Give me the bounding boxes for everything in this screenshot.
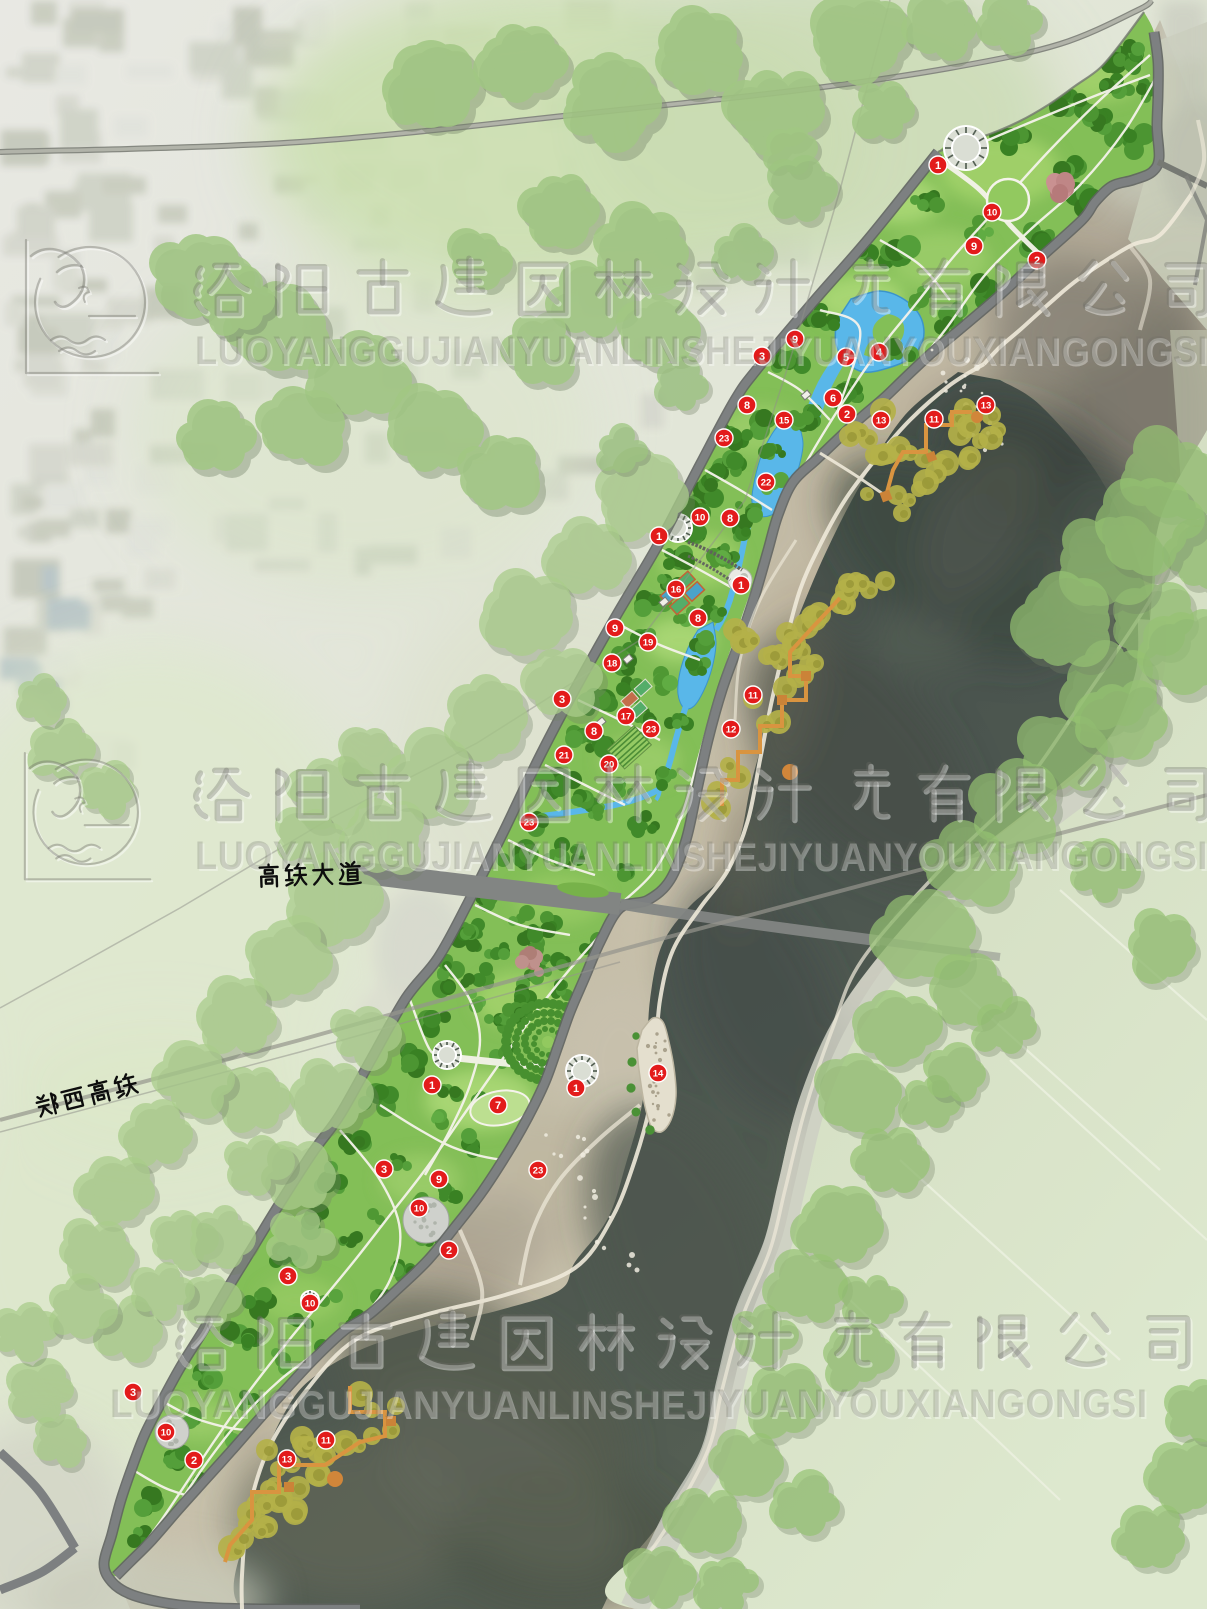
- svg-text:LUOYANGGUJIANYUANLINSHEJIYUANY: LUOYANGGUJIANYUANLINSHEJIYUANYOUXIANGONG…: [110, 1382, 1147, 1427]
- svg-text:2: 2: [446, 1245, 452, 1257]
- svg-text:3: 3: [381, 1164, 387, 1176]
- svg-text:9: 9: [436, 1174, 442, 1186]
- svg-text:12: 12: [726, 725, 737, 736]
- svg-text:23: 23: [533, 1166, 544, 1177]
- svg-text:19: 19: [643, 638, 654, 649]
- svg-text:10: 10: [987, 208, 998, 219]
- svg-text:8: 8: [744, 400, 750, 412]
- svg-text:1: 1: [935, 160, 941, 172]
- svg-text:15: 15: [779, 416, 790, 427]
- svg-text:13: 13: [981, 401, 992, 412]
- svg-text:13: 13: [876, 416, 887, 427]
- svg-text:6: 6: [830, 393, 836, 405]
- svg-text:2: 2: [844, 409, 850, 421]
- svg-text:8: 8: [591, 726, 597, 738]
- svg-text:23: 23: [719, 434, 730, 445]
- svg-text:1: 1: [656, 531, 662, 543]
- svg-text:8: 8: [727, 513, 733, 525]
- svg-text:22: 22: [761, 478, 772, 489]
- svg-text:13: 13: [282, 1455, 293, 1466]
- svg-text:21: 21: [559, 751, 570, 762]
- svg-text:9: 9: [971, 241, 977, 253]
- svg-text:10: 10: [305, 1299, 316, 1310]
- svg-text:14: 14: [653, 1069, 664, 1080]
- svg-text:2: 2: [191, 1455, 197, 1467]
- svg-text:16: 16: [671, 585, 682, 596]
- svg-text:10: 10: [414, 1204, 425, 1215]
- svg-text:9: 9: [612, 623, 618, 635]
- svg-text:8: 8: [695, 613, 701, 625]
- svg-text:11: 11: [929, 415, 940, 426]
- svg-text:1: 1: [573, 1083, 579, 1095]
- svg-text:18: 18: [607, 659, 618, 670]
- svg-text:10: 10: [161, 1428, 172, 1439]
- svg-text:10: 10: [695, 513, 706, 524]
- svg-text:3: 3: [285, 1271, 291, 1283]
- svg-text:11: 11: [321, 1436, 332, 1447]
- svg-text:1: 1: [429, 1080, 435, 1092]
- svg-text:11: 11: [748, 691, 759, 702]
- svg-text:LUOYANGGUJIANYUANLINSHEJIYUANY: LUOYANGGUJIANYUANLINSHEJIYUANYOUXIANGONG…: [195, 329, 1207, 373]
- svg-text:23: 23: [646, 725, 657, 736]
- svg-text:17: 17: [621, 712, 632, 723]
- svg-text:1: 1: [738, 580, 744, 592]
- svg-text:7: 7: [495, 1100, 501, 1112]
- svg-text:3: 3: [559, 694, 565, 706]
